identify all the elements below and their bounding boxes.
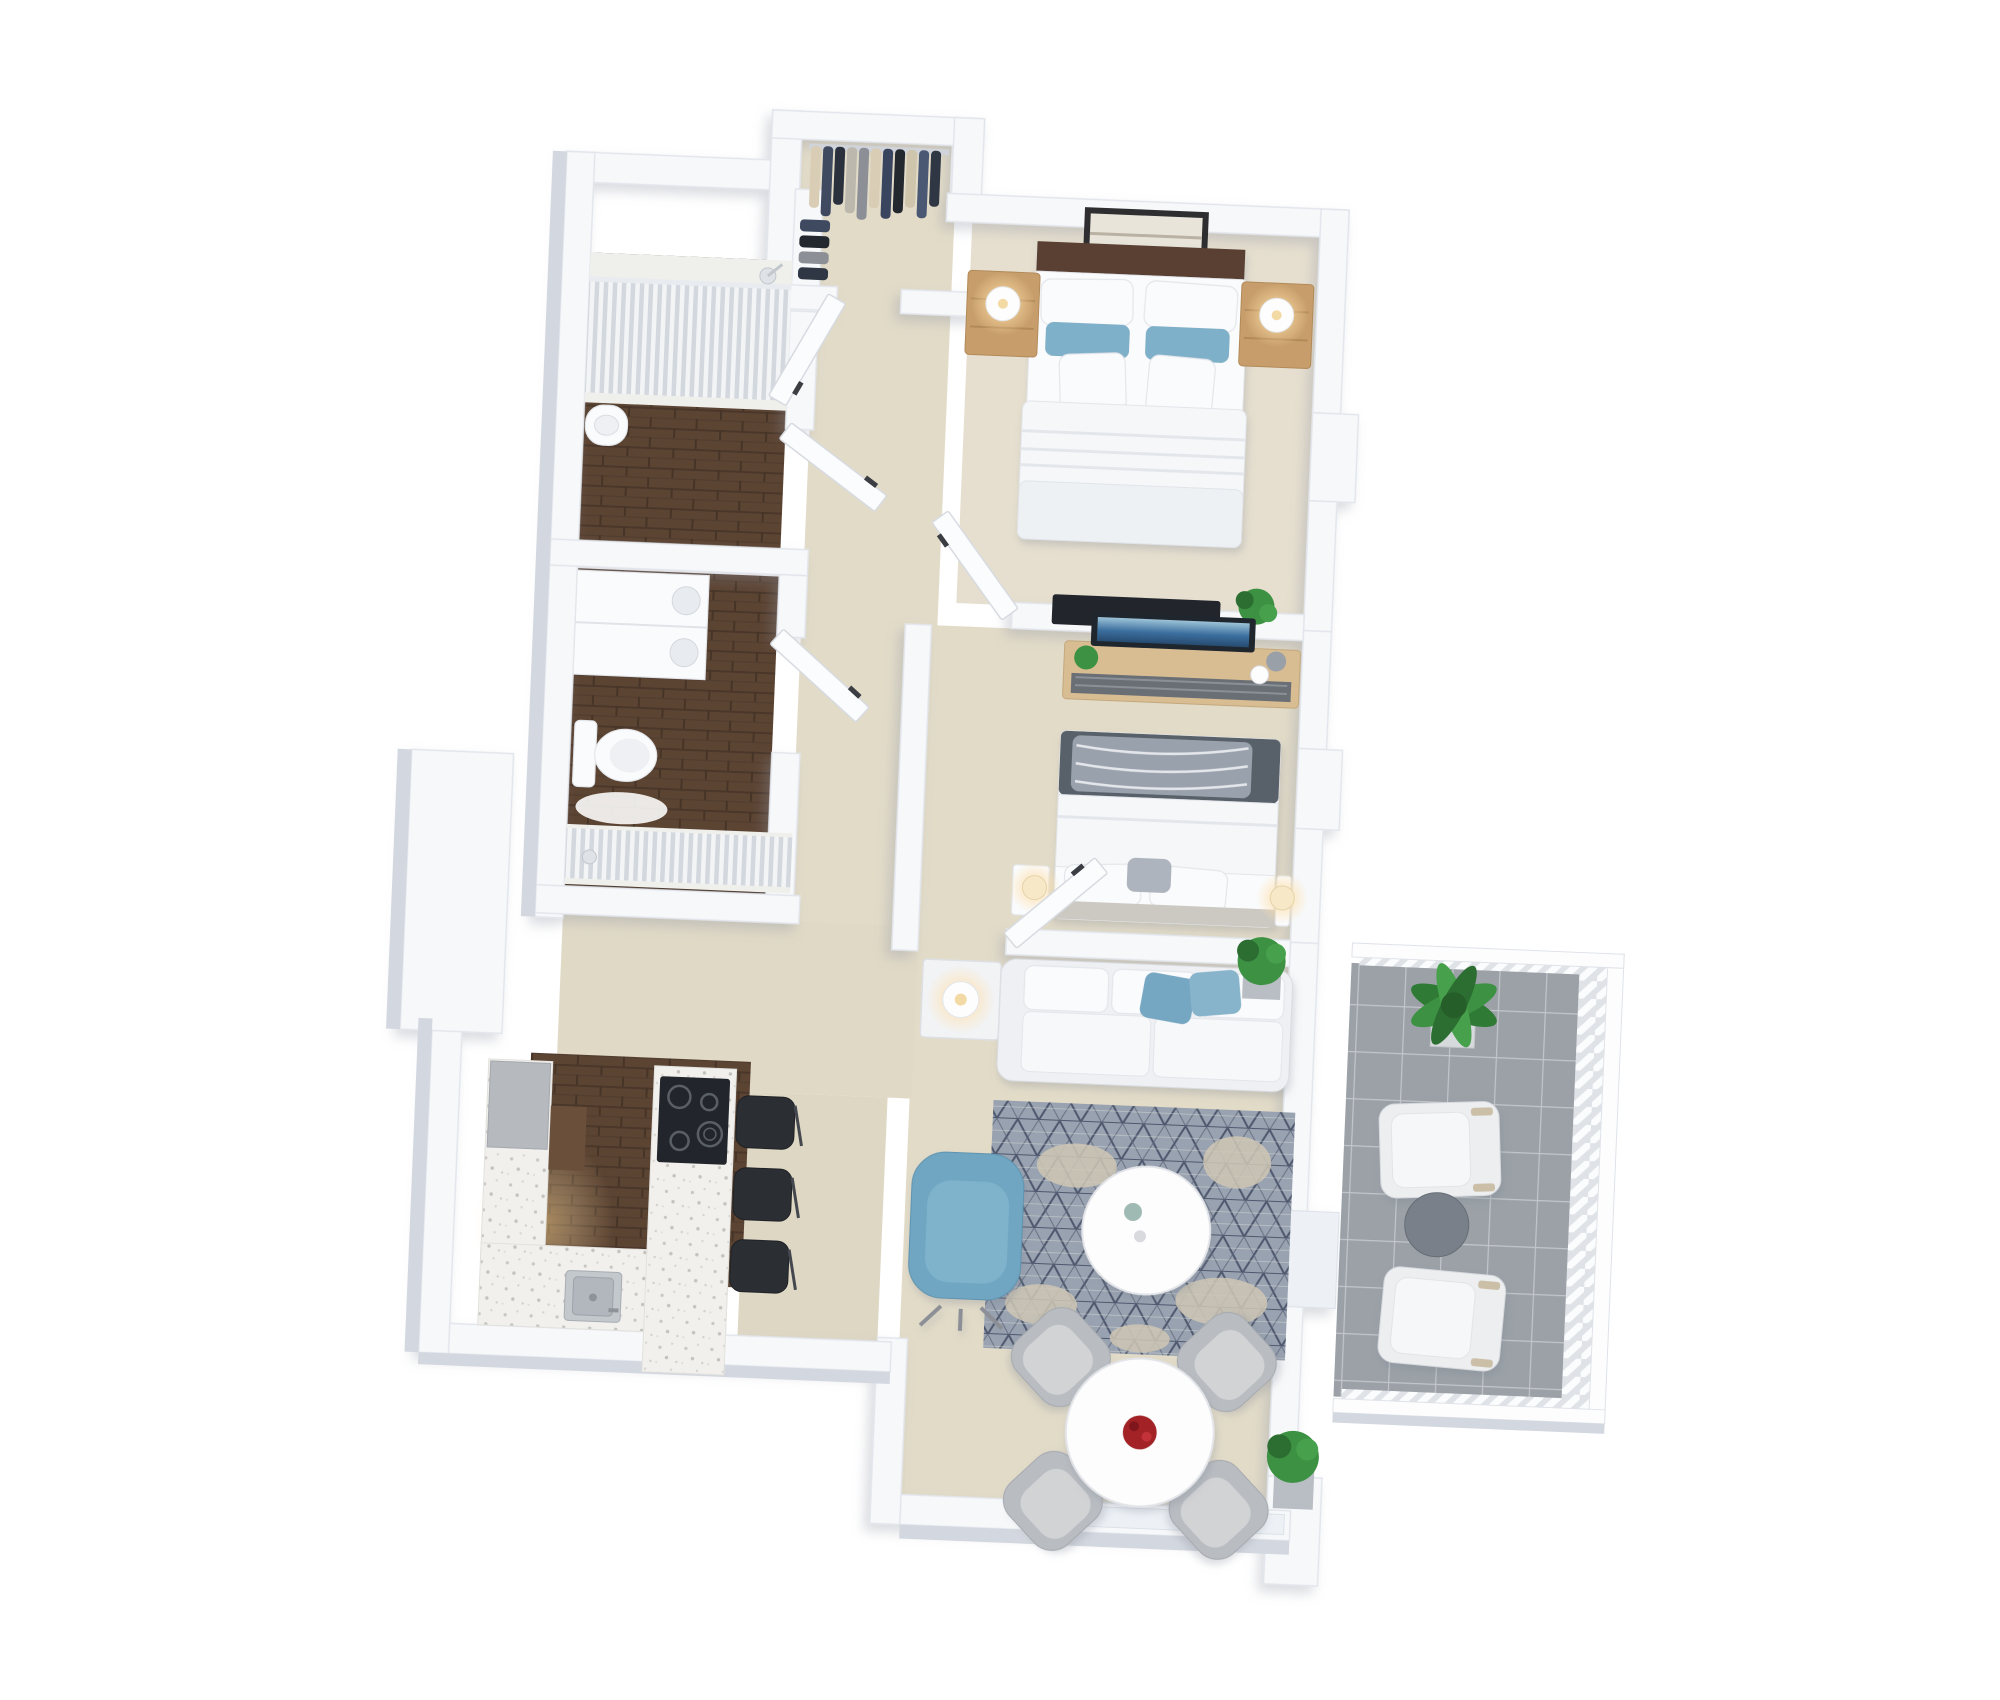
pillow (1041, 279, 1133, 326)
master-wall-right-b (1303, 501, 1336, 632)
cooktop (657, 1076, 731, 1165)
blue-cushion (1189, 969, 1242, 1017)
nightstand-right (1239, 282, 1314, 369)
bedroom2-window-column (1295, 749, 1342, 831)
dark-cabinet (548, 1106, 587, 1171)
globe-lamp (1022, 875, 1047, 900)
hand-shower (582, 850, 597, 865)
seat-cushion (1021, 1011, 1151, 1076)
wood-armrest (1471, 1107, 1493, 1116)
seat-cushion (1153, 1017, 1283, 1082)
shower-curtain (564, 828, 792, 887)
blue-cushion (1138, 971, 1197, 1026)
mug (1250, 665, 1269, 684)
kitchen-sink (564, 1270, 622, 1322)
apartment-plan (364, 95, 1658, 1597)
pedestal-sink (585, 404, 629, 446)
sofa-plant (1235, 936, 1287, 1000)
closet-wall-bottom-b (900, 289, 977, 316)
exterior-wall-top-bath (566, 151, 801, 191)
bar-stool (732, 1167, 792, 1221)
master-window-column (1309, 413, 1359, 503)
side-table (920, 959, 1001, 1040)
master-bed (1017, 241, 1253, 548)
bar-stool (729, 1239, 789, 1293)
laundry-cabinet (573, 570, 709, 679)
duvet-fold (1017, 481, 1243, 548)
exterior-buttress-wall (400, 749, 514, 1033)
bedroom2-wall-right-a (1299, 631, 1332, 750)
accent-pillow (1126, 857, 1171, 893)
appliance-column (487, 1061, 551, 1149)
bedroom2-bed (1049, 730, 1285, 927)
nightstand-left (965, 270, 1040, 357)
bar-stool (735, 1095, 795, 1149)
shower-curtain (585, 280, 792, 400)
armchair-seat (924, 1179, 1010, 1284)
bath-wall-right-c (777, 575, 808, 638)
pillow (1143, 280, 1238, 333)
globe-lamp (1270, 885, 1295, 910)
floorplan-svg: 3D isometric floor plan render — two-bed… (0, 0, 2000, 1700)
faucet (608, 1308, 618, 1312)
back-cushion (1023, 965, 1109, 1012)
wood-armrest (1473, 1183, 1495, 1192)
outdoor-lounge-chair (1377, 1265, 1507, 1372)
outdoor-lounge-chair (1379, 1101, 1502, 1198)
floorplan-render-canvas: 3D isometric floor plan render — two-bed… (0, 0, 2000, 1700)
